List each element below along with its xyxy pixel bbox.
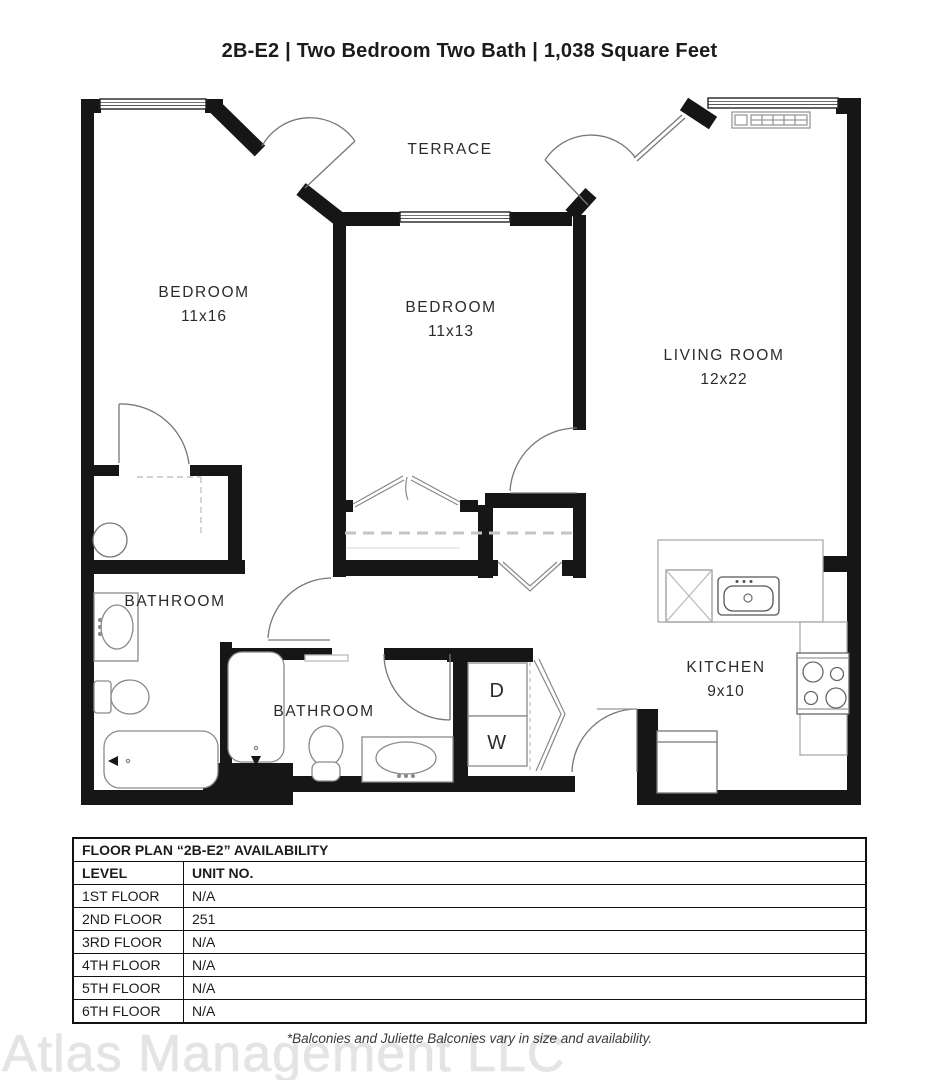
kitchen-dims: 9x10 — [707, 683, 745, 700]
window-bedroom1-top — [100, 99, 206, 109]
terrace-door-living-room — [545, 115, 685, 205]
bathroom2-label: BATHROOM — [273, 703, 374, 720]
table-row: 1ST FLOOR N/A — [74, 884, 865, 907]
availability-table: FLOOR PLAN “2B-E2” AVAILABILITY LEVEL UN… — [72, 837, 867, 1024]
bedroom1-entry-door — [268, 578, 331, 640]
column-header-level: LEVEL — [74, 862, 184, 884]
front-door — [572, 709, 637, 772]
living-room-dims: 12x22 — [700, 371, 747, 388]
level-cell: 5TH FLOOR — [74, 977, 184, 999]
table-row: 3RD FLOOR N/A — [74, 930, 865, 953]
level-cell: 3RD FLOOR — [74, 931, 184, 953]
hall-closet-bifold — [498, 562, 562, 591]
kitchen-fridge — [657, 731, 717, 793]
bathroom2-door — [384, 654, 450, 720]
bedroom1-dims: 11x16 — [181, 308, 227, 325]
table-header-row: LEVEL UNIT NO. — [74, 861, 865, 884]
bathroom1-toilet — [94, 680, 149, 714]
table-row: 5TH FLOOR N/A — [74, 976, 865, 999]
bedroom1-label: BEDROOM — [158, 284, 249, 301]
kitchen-stove — [797, 653, 849, 714]
kitchen-sink — [718, 577, 779, 615]
bedroom2-closet-bifold — [353, 476, 460, 507]
level-cell: 2ND FLOOR — [74, 908, 184, 930]
footnote: *Balconies and Juliette Balconies vary i… — [0, 1031, 939, 1046]
hvac-unit — [732, 112, 810, 128]
bedroom2-label: BEDROOM — [405, 299, 496, 316]
washer-label: W — [487, 732, 506, 754]
bedroom2-entry-door — [510, 428, 577, 493]
level-cell: 1ST FLOOR — [74, 885, 184, 907]
unit-cell: N/A — [184, 954, 865, 976]
table-title-row: FLOOR PLAN “2B-E2” AVAILABILITY — [74, 839, 865, 861]
window-bedroom2-top — [400, 212, 510, 222]
kitchen-dishwasher — [666, 570, 712, 622]
unit-cell: N/A — [184, 885, 865, 907]
terrace-door-bedroom1 — [262, 118, 355, 188]
table-row: 4TH FLOOR N/A — [74, 953, 865, 976]
laundry-closet-bifold — [534, 659, 565, 771]
bedroom1-closet-door — [119, 404, 189, 464]
level-cell: 6TH FLOOR — [74, 1000, 184, 1022]
dryer-label: D — [490, 680, 505, 702]
column-header-unit: UNIT NO. — [184, 862, 865, 884]
table-title: FLOOR PLAN “2B-E2” AVAILABILITY — [74, 839, 865, 861]
bathroom2-shelf — [305, 655, 348, 661]
kitchen-label: KITCHEN — [686, 659, 765, 676]
table-row: 6TH FLOOR N/A — [74, 999, 865, 1022]
unit-cell: N/A — [184, 977, 865, 999]
level-cell: 4TH FLOOR — [74, 954, 184, 976]
terrace-label: TERRACE — [407, 141, 492, 158]
bathroom1-label: BATHROOM — [124, 593, 225, 610]
window-living-room-top — [708, 98, 838, 108]
bathroom2-toilet — [309, 726, 343, 781]
bathroom2-vanity-sink — [362, 737, 453, 782]
table-row: 2ND FLOOR 251 — [74, 907, 865, 930]
bathroom1-bathtub — [104, 731, 218, 788]
unit-cell: N/A — [184, 1000, 865, 1022]
unit-cell: 251 — [184, 908, 865, 930]
water-heater — [93, 523, 127, 557]
windows — [100, 98, 838, 222]
bedroom2-dims: 11x13 — [428, 323, 474, 340]
floor-plan-page: 2B-E2 | Two Bedroom Two Bath | 1,038 Squ… — [0, 0, 939, 1080]
living-room-label: LIVING ROOM — [664, 347, 785, 364]
unit-cell: N/A — [184, 931, 865, 953]
